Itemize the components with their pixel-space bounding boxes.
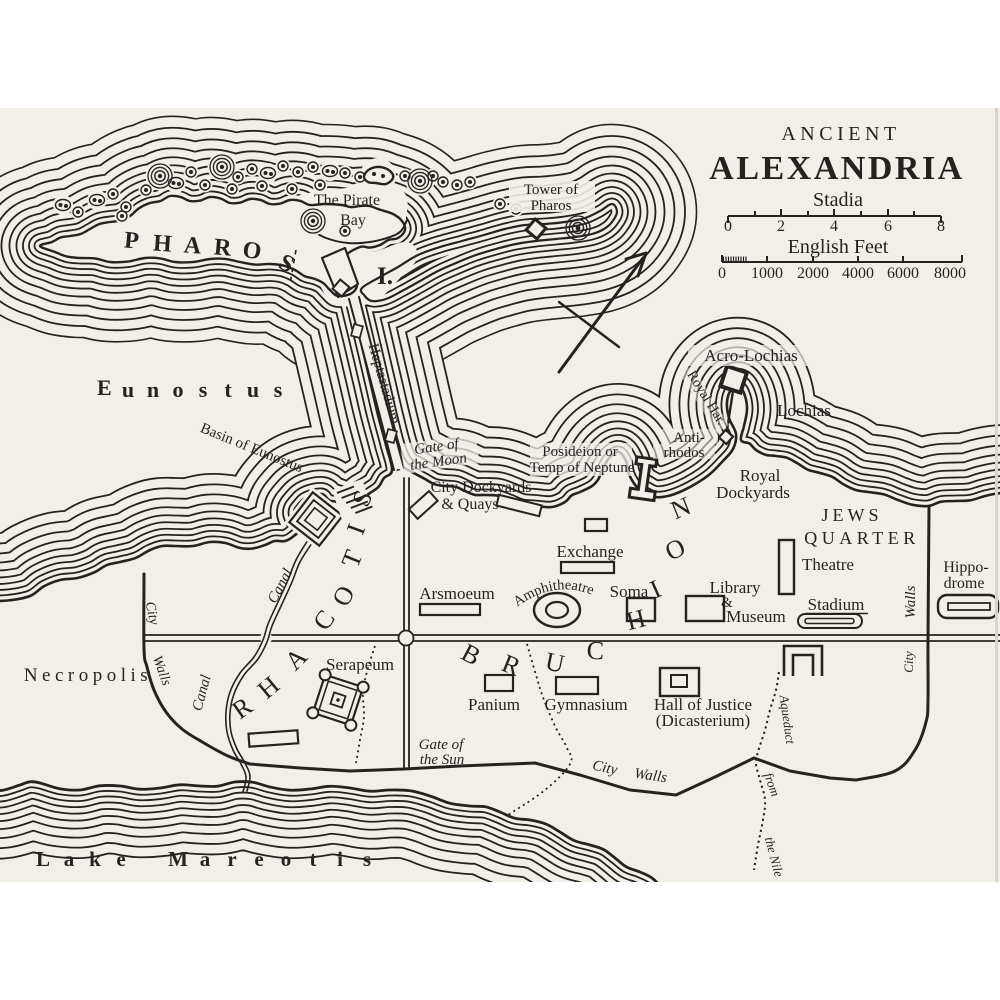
svg-text:M: M <box>168 847 188 871</box>
svg-text:Pharos: Pharos <box>531 198 572 214</box>
svg-text:Tower of: Tower of <box>524 182 578 198</box>
svg-text:Dockyards: Dockyards <box>716 483 790 502</box>
svg-text:Necropolis: Necropolis <box>24 665 152 686</box>
svg-text:the Sun: the Sun <box>420 752 465 768</box>
svg-text:Bay: Bay <box>340 212 366 229</box>
svg-text:English Feet: English Feet <box>788 236 889 258</box>
svg-text:I.: I. <box>377 263 393 290</box>
svg-text:O: O <box>241 237 263 265</box>
svg-text:2000: 2000 <box>797 265 829 282</box>
svg-text:n: n <box>147 377 159 402</box>
svg-text:0: 0 <box>718 265 726 282</box>
svg-text:Arsmoeum: Arsmoeum <box>419 584 495 603</box>
svg-text:Library: Library <box>710 578 761 597</box>
svg-text:A: A <box>183 232 203 259</box>
svg-text:Hippo-: Hippo- <box>943 559 988 576</box>
svg-text:Stadium: Stadium <box>808 595 865 614</box>
svg-text:s: s <box>363 847 371 871</box>
svg-text:QUARTER: QUARTER <box>804 528 919 548</box>
svg-text:ALEXANDRIA: ALEXANDRIA <box>709 150 964 187</box>
svg-text:Theatre: Theatre <box>802 555 854 574</box>
svg-text:Anti-: Anti- <box>673 430 705 446</box>
svg-text:o: o <box>173 377 184 402</box>
svg-text:H: H <box>152 230 173 257</box>
svg-text:Exchange: Exchange <box>556 542 623 561</box>
svg-text:8000: 8000 <box>934 265 966 282</box>
svg-text:u: u <box>122 377 134 402</box>
svg-text:e: e <box>116 847 125 871</box>
svg-text:u: u <box>247 377 259 402</box>
svg-text:2: 2 <box>777 218 785 235</box>
svg-text:t: t <box>310 847 317 871</box>
svg-text:k: k <box>89 847 101 871</box>
svg-text:Posideion or: Posideion or <box>542 444 617 460</box>
svg-text:Stadia: Stadia <box>813 189 863 211</box>
svg-text:Museum: Museum <box>726 607 786 626</box>
svg-text:L: L <box>36 847 50 871</box>
svg-text:8: 8 <box>937 218 945 235</box>
svg-text:Panium: Panium <box>468 695 520 714</box>
svg-text:6: 6 <box>884 218 892 235</box>
svg-text:Serapeum: Serapeum <box>326 655 394 674</box>
svg-text:& Quays: & Quays <box>441 496 498 513</box>
svg-text:Lochias: Lochias <box>777 401 831 420</box>
svg-text:Gate of: Gate of <box>419 737 465 753</box>
svg-text:Acro-Lochias: Acro-Lochias <box>704 346 797 365</box>
svg-text:The Pirate: The Pirate <box>314 192 380 209</box>
svg-text:r: r <box>227 847 236 871</box>
svg-text:s: s <box>199 377 208 402</box>
svg-text:City: City <box>901 651 916 673</box>
svg-text:Gymnasium: Gymnasium <box>544 695 627 714</box>
svg-text:4: 4 <box>830 218 838 235</box>
svg-text:a: a <box>200 847 211 871</box>
svg-text:i: i <box>337 847 343 871</box>
svg-text:C: C <box>586 636 604 666</box>
svg-text:4000: 4000 <box>842 265 874 282</box>
svg-text:ANCIENT: ANCIENT <box>781 123 900 145</box>
svg-text:a: a <box>64 847 75 871</box>
svg-text:s: s <box>274 377 283 402</box>
svg-text:Temp of Neptune: Temp of Neptune <box>530 460 635 476</box>
svg-text:Soma: Soma <box>610 582 649 601</box>
svg-text:o: o <box>281 847 292 871</box>
svg-text:P: P <box>123 227 140 254</box>
svg-text:City Dockyards: City Dockyards <box>431 479 532 496</box>
svg-text:e: e <box>254 847 263 871</box>
svg-text:1000: 1000 <box>751 265 783 282</box>
svg-text:6000: 6000 <box>887 265 919 282</box>
svg-text:R: R <box>213 234 233 261</box>
svg-text:t: t <box>224 377 232 402</box>
svg-text:E: E <box>97 375 112 400</box>
svg-text:JEWS: JEWS <box>822 505 883 525</box>
svg-text:(Dicasterium): (Dicasterium) <box>656 711 750 730</box>
svg-text:drome: drome <box>944 575 985 592</box>
svg-text:Walls: Walls <box>903 585 919 618</box>
svg-text:0: 0 <box>724 218 732 235</box>
svg-text:rhodos: rhodos <box>664 445 705 461</box>
